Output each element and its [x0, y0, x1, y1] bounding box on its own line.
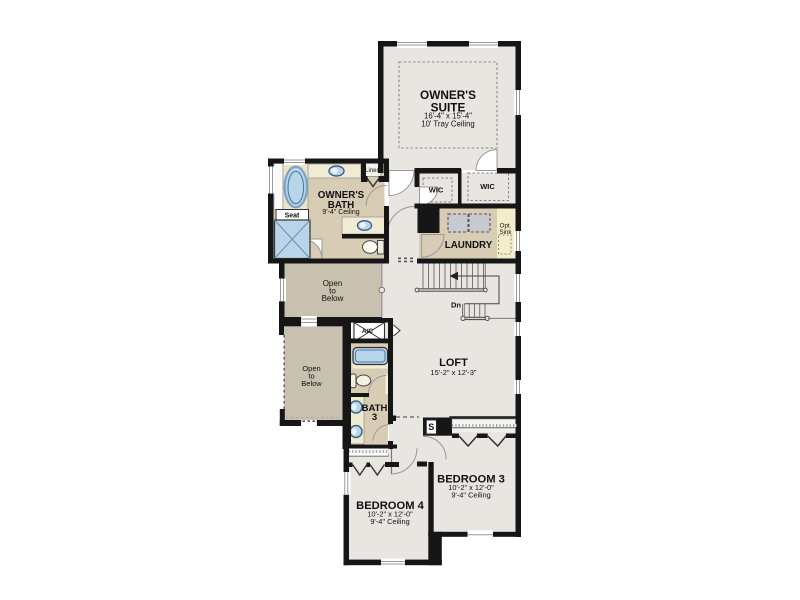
svg-text:Below: Below — [301, 379, 322, 388]
svg-text:LAUNDRY: LAUNDRY — [445, 240, 493, 251]
svg-text:9'-4" Ceiling: 9'-4" Ceiling — [322, 209, 359, 216]
svg-text:Dn: Dn — [451, 301, 461, 310]
svg-text:Linen: Linen — [365, 168, 380, 174]
svg-text:WIC: WIC — [429, 186, 444, 195]
svg-text:10' Tray Ceiling: 10' Tray Ceiling — [421, 120, 475, 129]
svg-text:Below: Below — [322, 294, 344, 303]
svg-text:A/C: A/C — [362, 328, 374, 335]
svg-text:9'-4" Ceiling: 9'-4" Ceiling — [370, 517, 409, 526]
svg-text:9'-4" Ceiling: 9'-4" Ceiling — [451, 491, 490, 500]
svg-text:WIC: WIC — [480, 182, 495, 191]
svg-text:3: 3 — [372, 412, 377, 423]
svg-text:S: S — [428, 422, 434, 432]
svg-text:Sink: Sink — [499, 229, 512, 236]
svg-text:15'-2" x 12'-3": 15'-2" x 12'-3" — [430, 368, 476, 377]
svg-text:Seat: Seat — [285, 213, 300, 220]
